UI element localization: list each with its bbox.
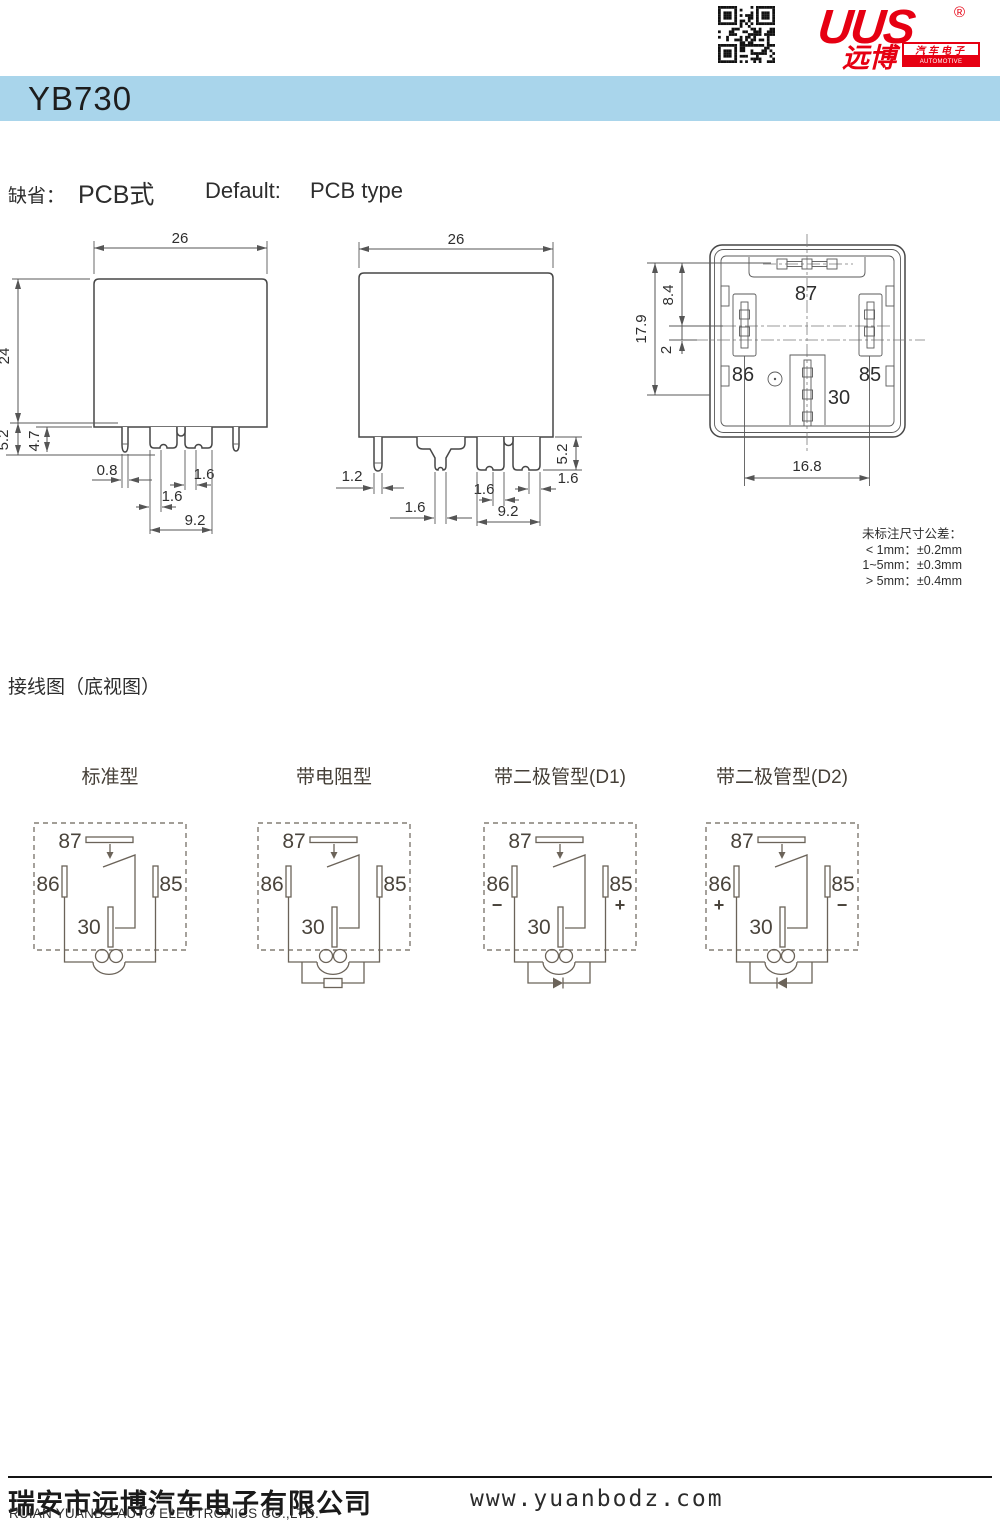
wiring-diagram-standard: 87 86 85 30 xyxy=(18,810,248,995)
polarity-sign-86: − xyxy=(492,895,503,915)
company-name-en: RUIAN YUANBO AUTO ELECTRONICS CO.,LTD. xyxy=(9,1506,319,1521)
circuit-pin-86: 86 xyxy=(36,873,59,896)
polarity-sign-85: + xyxy=(615,895,626,915)
dim-mid-gap: 2 xyxy=(658,346,675,354)
tolerance-note: 未标注尺寸公差： < 1mm：±0.2mm 1~5mm：±0.3mm > 5mm… xyxy=(800,527,962,589)
dim-round-pin-a: 0.8 xyxy=(97,462,118,479)
relay-body-b xyxy=(359,273,553,437)
default-value-en: PCB type xyxy=(310,178,403,204)
page-title: YB730 xyxy=(28,76,132,121)
dim-pitch-b: 9.2 xyxy=(498,503,519,520)
model-title-bar: YB730 xyxy=(0,76,1000,121)
dim-width-a: 26 xyxy=(172,230,189,247)
dim-pin-length-a: 5.2 xyxy=(0,430,12,451)
circuit-pin-87: 87 xyxy=(730,830,753,853)
default-label-cn: 缺省： xyxy=(8,181,65,208)
diode-symbol-d1 xyxy=(553,978,563,989)
website-url: www.yuanbodz.com xyxy=(470,1486,724,1512)
dim-blade1-a: 1.6 xyxy=(194,466,215,483)
wiring-diagram-diode-d1: 87 86 85 30 − + xyxy=(468,810,698,995)
pin-label-85: 85 xyxy=(859,364,881,386)
relay-outline-outer xyxy=(710,245,905,437)
wiring-diagram-resistor: 87 86 85 30 xyxy=(242,810,472,995)
dim-width-b: 26 xyxy=(448,231,465,248)
circuit-pin-85: 85 xyxy=(831,873,854,896)
circuit-pin-85: 85 xyxy=(383,873,406,896)
footer-divider xyxy=(8,1476,992,1478)
blade-pin-b2 xyxy=(513,437,540,470)
diagram-title-resistor: 带电阻型 xyxy=(224,762,444,789)
polarity-sign-85: − xyxy=(837,895,848,915)
relay-body-a xyxy=(94,279,267,427)
circuit-pin-86: 86 xyxy=(486,873,509,896)
circuit-pin-87: 87 xyxy=(58,830,81,853)
dim-blade2-b: 1.6 xyxy=(558,470,579,487)
drawing-side-view-b: 26 1.2 1.6 5.2 1.6 1.6 xyxy=(330,228,620,528)
tolerance-line-1: < 1mm：±0.2mm xyxy=(800,543,962,559)
diagram-title-standard: 标准型 xyxy=(0,762,220,789)
circuit-pin-30: 30 xyxy=(749,916,772,939)
dim-top-gap: 8.4 xyxy=(660,285,677,306)
dim-pin-length-b: 5.2 xyxy=(554,444,571,465)
pin-label-30: 30 xyxy=(828,387,850,409)
qr-code xyxy=(718,6,775,63)
dim-height-a: 24 xyxy=(0,348,13,365)
wiring-section-title: 接线图（底视图） xyxy=(8,672,160,699)
round-pin-left-a xyxy=(122,427,128,452)
circuit-pin-87: 87 xyxy=(508,830,531,853)
pin-label-87: 87 xyxy=(795,283,817,305)
tolerance-line-2: 1~5mm：±0.3mm xyxy=(800,558,962,574)
round-pin-b xyxy=(374,437,382,471)
tolerance-title: 未标注尺寸公差： xyxy=(800,527,962,543)
drawing-side-view-a: 26 24 5.2 4.7 0.8 1.6 1.6 xyxy=(0,228,300,563)
dim-center-blade-b: 1.6 xyxy=(405,499,426,516)
dim-blade2-a: 1.6 xyxy=(162,488,183,505)
drawing-bottom-view: 87 86 85 30 17.9 8.4 2 16.8 xyxy=(625,228,1000,503)
brand-logo-cn: 远博 xyxy=(842,36,896,75)
blade-pin-b1 xyxy=(477,437,504,470)
dim-span: 16.8 xyxy=(792,458,821,475)
diagram-title-diode-d1: 带二极管型(D1) xyxy=(450,762,670,789)
registered-mark-icon: ® xyxy=(954,4,965,21)
round-pin-right-a xyxy=(233,427,239,451)
dim-round-pin-b: 1.2 xyxy=(342,468,363,485)
diagram-title-diode-d2: 带二极管型(D2) xyxy=(672,762,892,789)
default-value-cn: PCB式 xyxy=(78,175,154,211)
blade-pin-a1 xyxy=(150,427,177,448)
resistor-symbol xyxy=(324,979,342,988)
circuit-pin-86: 86 xyxy=(260,873,283,896)
pin-label-86: 86 xyxy=(732,364,754,386)
diode-symbol-d2 xyxy=(777,978,787,989)
tolerance-line-3: > 5mm：±0.4mm xyxy=(800,574,962,590)
datasheet-page: UUS ® 远博 汽车电子 AUTOMOTIVE ELECTRONICS YB7… xyxy=(0,0,1000,1521)
dim-pitch-a: 9.2 xyxy=(185,512,206,529)
blade-pin-a2 xyxy=(185,427,212,448)
wiring-diagram-diode-d2: 87 86 85 30 + − xyxy=(690,810,920,995)
polarity-sign-86: + xyxy=(714,895,725,915)
dim-pin-length2-a: 4.7 xyxy=(26,431,43,452)
dim-total-height: 17.9 xyxy=(633,314,650,343)
circuit-pin-85: 85 xyxy=(609,873,632,896)
circuit-pin-86: 86 xyxy=(708,873,731,896)
default-label-en: Default: xyxy=(205,178,281,204)
circuit-pin-30: 30 xyxy=(527,916,550,939)
circuit-pin-30: 30 xyxy=(301,916,324,939)
brand-tag-en: AUTOMOTIVE ELECTRONICS xyxy=(902,57,980,67)
circuit-pin-30: 30 xyxy=(77,916,100,939)
brand-tag-cn: 汽车电子 xyxy=(902,42,980,57)
circuit-pin-87: 87 xyxy=(282,830,305,853)
circuit-pin-85: 85 xyxy=(159,873,182,896)
center-blade-pin-b xyxy=(417,437,465,470)
